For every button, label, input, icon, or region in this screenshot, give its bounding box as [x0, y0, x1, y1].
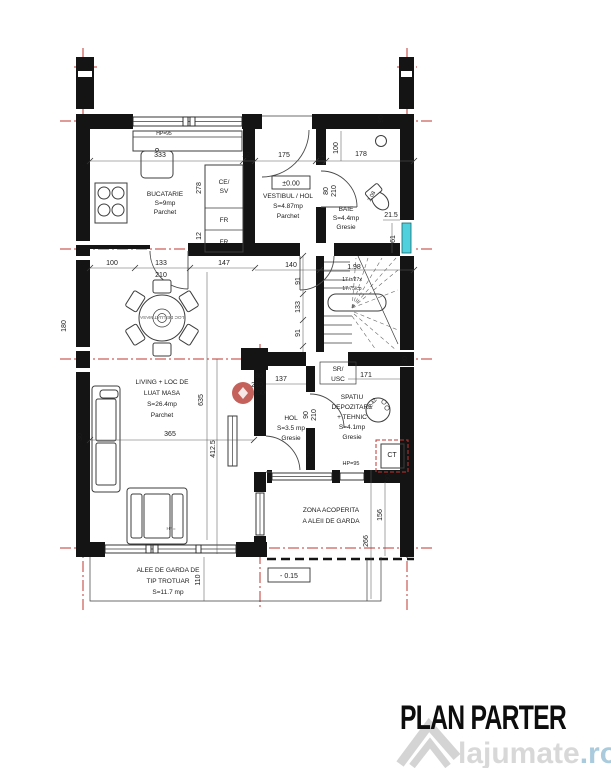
room-label-vestibul: VESTIBUL / HOL	[263, 193, 313, 200]
room-floor: Gresie	[342, 434, 362, 441]
dim-label: 76	[307, 450, 314, 458]
room-floor: Parchet	[154, 209, 177, 216]
dim-label: 12	[317, 152, 325, 159]
level-ground: ±0.00	[282, 181, 300, 188]
stove	[95, 183, 127, 223]
dim-label: 21.5	[384, 212, 398, 219]
room-label-living: LIVING + LOC DE	[136, 379, 190, 386]
cabinet-label: SV	[220, 188, 229, 195]
window-label: HP=	[166, 526, 175, 531]
sofa	[92, 386, 120, 492]
dim-label: 210	[331, 185, 338, 197]
watermark-text: lajumate.ro	[458, 737, 611, 768]
room-area: S=4.1mp	[339, 424, 366, 431]
dim-label: 30	[402, 356, 409, 364]
walkway	[90, 557, 414, 601]
column	[76, 57, 94, 109]
floor-plan-page: HP=95 HP=95 HP= 333 12 175 12 178 100 90…	[0, 0, 611, 768]
room-area: S=26.4mp	[147, 401, 177, 408]
cabinet-label: FR	[220, 217, 229, 224]
room-floor: Parchet	[151, 412, 174, 419]
table-label: LOC DE LUAT MASA	[139, 315, 184, 320]
dim-label: 100	[333, 142, 340, 154]
dim-label: 210	[155, 272, 167, 279]
room-area: S=11.7 mp	[152, 589, 184, 596]
dim-label: 12	[196, 232, 203, 240]
boiler-label: CT	[387, 452, 397, 459]
dim-label: 210	[251, 382, 263, 389]
armchair	[127, 488, 187, 544]
dim-label: 91	[295, 329, 302, 337]
room-label-zona: ZONA ACOPERITA	[303, 507, 360, 514]
room-label-sr: SR/	[333, 366, 344, 373]
room-area: S=4.4mp	[333, 215, 360, 222]
dim-label: 140	[285, 262, 297, 269]
dim-label: 147	[218, 260, 230, 267]
room-label-zona2: A ALEII DE GARDA	[302, 518, 360, 525]
dim-label: 91	[295, 277, 302, 285]
dim-label: 178	[355, 151, 367, 158]
room-area: S=3.5 mp	[277, 425, 305, 432]
dim-label: 210	[311, 409, 318, 421]
dim-label: 150	[253, 390, 265, 397]
window-cyan	[402, 223, 411, 253]
window-label: HP=95	[343, 461, 360, 467]
dim-label: 12	[242, 152, 250, 159]
room-label-living2: LUAT MASA	[144, 390, 181, 397]
cabinet-label: CE/	[219, 179, 230, 186]
stair-note: 17.75/cp	[342, 286, 361, 292]
stair-winders	[352, 258, 398, 350]
room-label-depozitare2: DEPOZITARE	[331, 404, 373, 411]
dim-label: 80	[255, 373, 263, 380]
dim-label: 171	[360, 372, 372, 379]
dim-label: 90	[303, 411, 310, 419]
dim-label: 635	[198, 394, 205, 406]
level-terrace: - 0.15	[280, 573, 298, 580]
room-label-usc: USC	[331, 376, 345, 383]
room-floor: Gresie	[281, 435, 301, 442]
dim-label: 156	[377, 509, 384, 521]
radiator	[228, 416, 237, 466]
logo-stamp	[232, 382, 254, 404]
room-floor: Parchet	[277, 213, 300, 220]
room-floor: Gresie	[336, 224, 356, 231]
walkway-outline	[90, 557, 381, 601]
room-label-alee2: TIP TROTUAR	[146, 578, 189, 585]
room-area: S=9mp	[155, 200, 176, 207]
room-label-baie: BAIE	[339, 206, 354, 213]
dim-label: 175	[278, 152, 290, 159]
dim-label: 30	[77, 433, 84, 441]
stair-height: 1.98	[347, 264, 361, 271]
dim-label: 100	[106, 260, 118, 267]
dim-label: 333	[154, 152, 166, 159]
dim-label: 80	[323, 187, 330, 195]
dim-label: 365	[164, 431, 176, 438]
stair-note: 17 tr/27x	[342, 277, 362, 283]
dim-label: 137	[275, 376, 287, 383]
dim-label: 266	[363, 535, 370, 547]
room-label-alee: ALEE DE GARDA DE	[137, 567, 201, 574]
bath-sink	[376, 136, 387, 147]
window-label: HP=95	[156, 131, 172, 137]
dim-label: 110	[195, 574, 202, 585]
dim-label: 80	[385, 474, 392, 482]
room-label-hol: HOL	[284, 415, 298, 422]
dim-label: 278	[196, 182, 203, 194]
column	[399, 57, 414, 109]
room-area: S=4.87mp	[273, 203, 303, 210]
dim-label: 133	[155, 260, 167, 267]
dim-label: 180	[61, 320, 68, 332]
cabinet-label: FR	[220, 239, 229, 246]
room-label-bucatarie: BUCATARIE	[147, 191, 184, 198]
dim-label: 90	[378, 115, 385, 123]
dim-label: 61	[390, 235, 397, 243]
dim-label: 412.5	[210, 440, 217, 458]
dim-label: 133	[295, 301, 302, 313]
floor-plan-drawing: HP=95 HP=95 HP= 333 12 175 12 178 100 90…	[0, 0, 611, 768]
kitchen-counter	[133, 131, 242, 151]
plan-title: PLAN PARTER	[400, 699, 566, 737]
stair-break-line	[358, 256, 398, 344]
room-label-depozitare3: + TEHNIC	[337, 414, 367, 421]
room-label-depozitare: SPATIU	[341, 394, 364, 401]
